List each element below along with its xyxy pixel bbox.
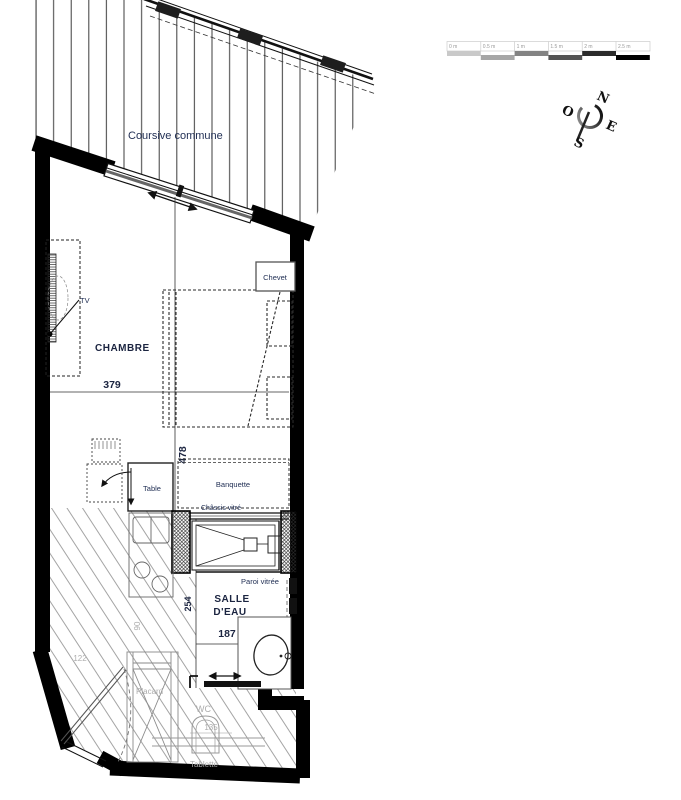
pier-left [172,511,190,573]
compass-letter-s: S [571,135,586,153]
table-label: Table [143,484,161,493]
scale-segment [481,55,515,60]
scale-segment [548,55,582,60]
folding-table: Table [102,463,173,511]
scale-tick-0: 0 m [449,44,457,50]
scale-segment [447,51,481,56]
scale-segment [582,51,616,56]
stool [92,439,120,462]
dim-entry-width: 122 [73,654,87,663]
scale-segment [616,55,650,60]
wc-label: WC [196,704,211,714]
placard-label: Placard [136,687,163,696]
scale-tick-5: 2.5 m [618,44,631,50]
tablette-label: Tablette [190,760,219,769]
dim-door-width: 90 [133,621,142,630]
dim-chambre-width: 379 [103,379,121,391]
dim-chambre-depth: 478 [177,446,189,464]
chassis-vitre-label: Châssis vitré [201,505,241,512]
compass: N O E S [559,89,618,153]
compass-letter-n: N [594,89,611,108]
bed-fold-line [248,292,280,426]
banquette-label: Banquette [216,480,250,489]
tv-label: TV [80,296,90,305]
wall-right-lower [296,700,310,778]
floorplan-svg: Coursive commune 379 478 187 254 1 [0,0,681,800]
walkway-label: Coursive commune [128,130,223,142]
salle-deau-label-line1: SALLE [214,594,249,605]
dim-salledeau-depth: 254 [183,596,193,611]
bed [163,290,293,427]
salle-deau-label-line2: D'EAU [213,607,246,618]
sink-drain [280,655,283,658]
floorplan-page: Coursive commune 379 478 187 254 1 [0,0,681,800]
paroi-vitree-label: Paroi vitrée [241,577,279,586]
nightstand: Chevet [256,262,295,291]
wall-bottom [110,768,300,776]
pillow [267,301,292,346]
scale-segment [515,51,549,56]
scale-tick-4: 2 m [584,44,592,50]
chevet-label: Chevet [263,273,288,282]
dim-wc-width: 135 [204,723,218,732]
shower [192,521,281,570]
wall-left [35,140,50,652]
pillow [267,377,292,419]
compass-letter-o: O [559,103,575,121]
vanity-sink [238,617,291,689]
scale-bar: 0 m 0.5 m 1 m 1.5 m 2 m 2.5 m [447,42,650,61]
table-fold-arrow-swing [102,472,131,486]
chassis-vitre-window [190,513,289,519]
scale-tick-1: 0.5 m [483,44,496,50]
compass-letter-e: E [603,118,618,136]
wall-right [290,227,304,689]
chambre-label: CHAMBRE [95,343,150,354]
wardrobe-tv-unit [46,240,80,376]
pier-right [281,511,297,573]
dim-salledeau-width: 187 [218,628,236,640]
scale-tick-2: 1 m [517,44,525,50]
scale-tick-3: 1.5 m [550,44,563,50]
banquette: Banquette [178,459,289,508]
